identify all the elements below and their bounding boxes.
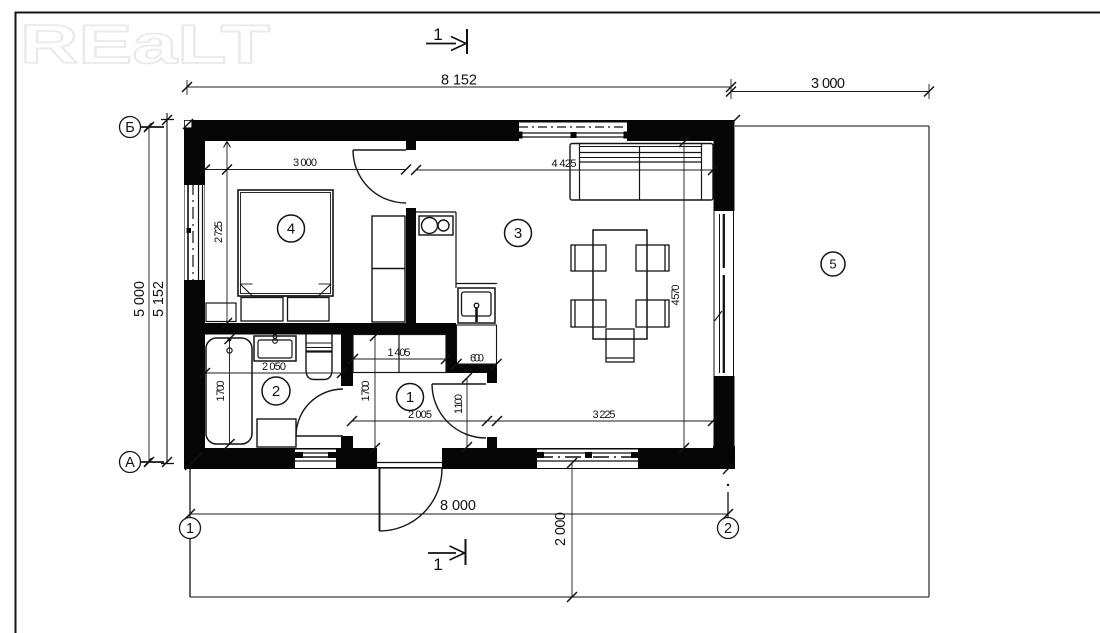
svg-text:4 425: 4 425 <box>552 158 577 170</box>
svg-text:8 152: 8 152 <box>441 73 477 89</box>
svg-text:1: 1 <box>406 389 414 406</box>
svg-text:1: 1 <box>433 555 442 574</box>
svg-text:5 000: 5 000 <box>132 281 148 317</box>
svg-text:1 700: 1 700 <box>360 381 372 402</box>
svg-text:REaLT: REaLT <box>20 13 270 75</box>
svg-text:3 225: 3 225 <box>593 409 616 421</box>
svg-text:1: 1 <box>433 25 442 44</box>
svg-text:Б: Б <box>125 120 135 136</box>
svg-text:1 700: 1 700 <box>215 381 227 402</box>
svg-text:3 000: 3 000 <box>293 157 317 169</box>
svg-text:А: А <box>125 455 135 471</box>
svg-text:5: 5 <box>829 257 836 272</box>
svg-text:1 405: 1 405 <box>388 347 411 359</box>
svg-text:4 570: 4 570 <box>670 285 682 306</box>
svg-text:3: 3 <box>514 225 522 242</box>
svg-text:600: 600 <box>470 353 484 365</box>
svg-text:1: 1 <box>186 521 194 537</box>
svg-text:2 000: 2 000 <box>553 512 569 546</box>
svg-text:4: 4 <box>287 221 295 238</box>
svg-text:2: 2 <box>272 383 280 400</box>
svg-text:8 000: 8 000 <box>440 498 476 514</box>
svg-text:5 152: 5 152 <box>151 281 167 317</box>
svg-text:1 100: 1 100 <box>453 394 465 414</box>
svg-text:2: 2 <box>724 521 732 537</box>
svg-text:2 725: 2 725 <box>213 221 225 243</box>
svg-text:3 000: 3 000 <box>811 76 845 92</box>
svg-text:2 050: 2 050 <box>262 361 286 373</box>
